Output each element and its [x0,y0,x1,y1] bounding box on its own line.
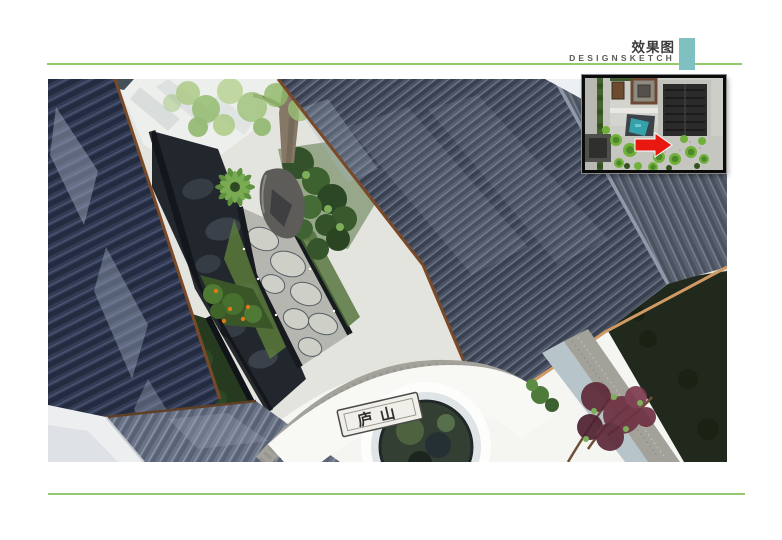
plan-water-feature [625,114,655,138]
header-rule [47,63,742,65]
site-plan-inset [582,75,726,173]
plan-brown-deck [612,82,624,99]
plan-walk [610,108,660,113]
plan-green-band [610,78,632,81]
plan-charcoal-plaza [585,134,611,162]
plan-pavilion [632,79,656,103]
page-subtitle: DESIGNSKETCH [569,53,675,63]
accent-square [679,38,695,70]
design-sketch-page: 效果图 DESIGNSKETCH [0,0,782,540]
footer-rule [48,493,745,495]
